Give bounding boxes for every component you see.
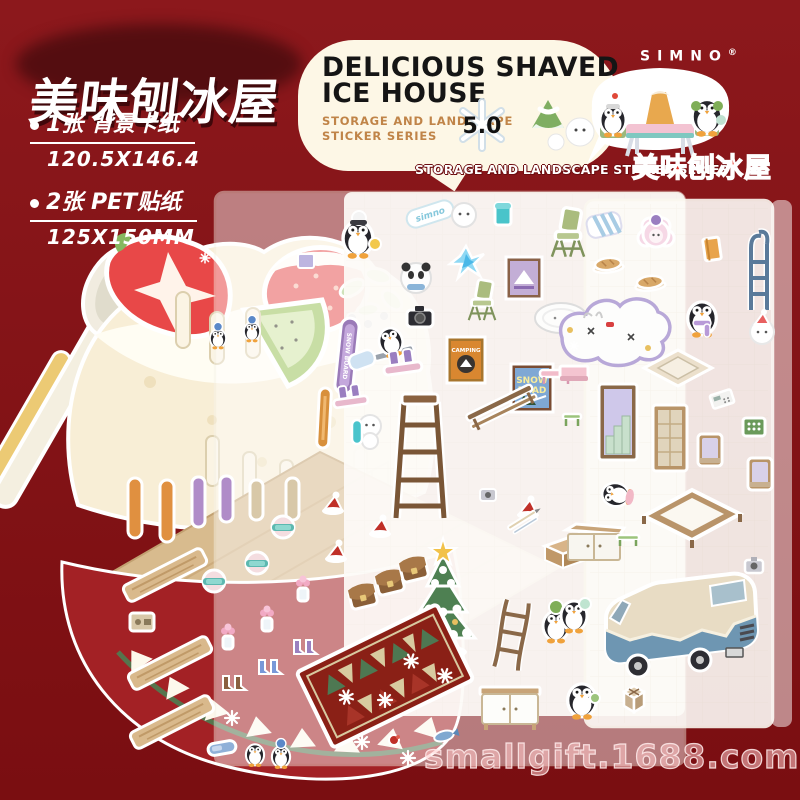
- red-bird-sticker: [389, 735, 400, 745]
- bullet-dot: [30, 199, 39, 208]
- spec-item: 1张 背景卡纸 120.5X146.4: [30, 106, 200, 171]
- pink-table-sticker: [560, 366, 588, 381]
- series-title-cn: 美味刨冰屋: [632, 146, 772, 185]
- white-cabinet-sticker: [480, 687, 540, 730]
- snowball-face-sticker: [452, 203, 476, 227]
- white-cabinet-2-sticker: [566, 524, 624, 560]
- camping-poster-purple-sticker: [506, 257, 542, 299]
- version-badge: 5.0: [450, 96, 514, 154]
- spec-value: 125X150MM: [47, 225, 200, 249]
- teal-capsule-sticker: [352, 420, 362, 444]
- pet-sheet-2-edge: [771, 200, 792, 727]
- watermark: smallgift.1688.com: [424, 737, 800, 776]
- spec-label: 2张 PET贴纸: [30, 184, 197, 222]
- black-camera-sticker: [407, 306, 433, 327]
- registered-mark: ®: [728, 48, 737, 58]
- version-number: 5.0: [463, 114, 502, 139]
- radio-box-sticker: [130, 613, 154, 631]
- spec-item: 2张 PET贴纸 125X150MM: [30, 184, 200, 249]
- gift-box-sticker: [624, 686, 644, 712]
- camera-2-sticker: [745, 557, 763, 573]
- spec-value: 120.5X146.4: [47, 147, 200, 171]
- speech-bubble: DELICIOUS SHAVED ICE HOUSE STORAGE AND L…: [298, 40, 620, 171]
- window-2-sticker: [748, 458, 772, 490]
- gray-camera-sticker: [480, 489, 496, 501]
- window-sticker: [698, 434, 722, 466]
- spec-label: 1张 背景卡纸: [30, 106, 195, 144]
- spec-list: 1张 背景卡纸 120.5X146.4 2张 PET贴纸 125X150MM: [30, 106, 200, 262]
- teal-cup-sticker: [495, 203, 511, 225]
- orange-board-sticker: [316, 388, 331, 449]
- helmet-sticker: [272, 516, 294, 538]
- helmet-sticker: [246, 552, 268, 574]
- camping-poster-orange-sticker: CAMPING: [447, 337, 485, 383]
- panda-scarf-sticker: [401, 263, 431, 294]
- green-phone-sticker: [743, 418, 765, 436]
- bullet-dot: [30, 121, 39, 130]
- helmet-sticker: [203, 570, 225, 592]
- door-with-stairs-sticker: [599, 384, 637, 460]
- lattice-door-sticker: [653, 405, 687, 471]
- orange-book-sticker: [703, 237, 722, 261]
- svg-text:CAMPING: CAMPING: [452, 348, 481, 354]
- penguin-purple-scarf-sticker: [688, 302, 717, 338]
